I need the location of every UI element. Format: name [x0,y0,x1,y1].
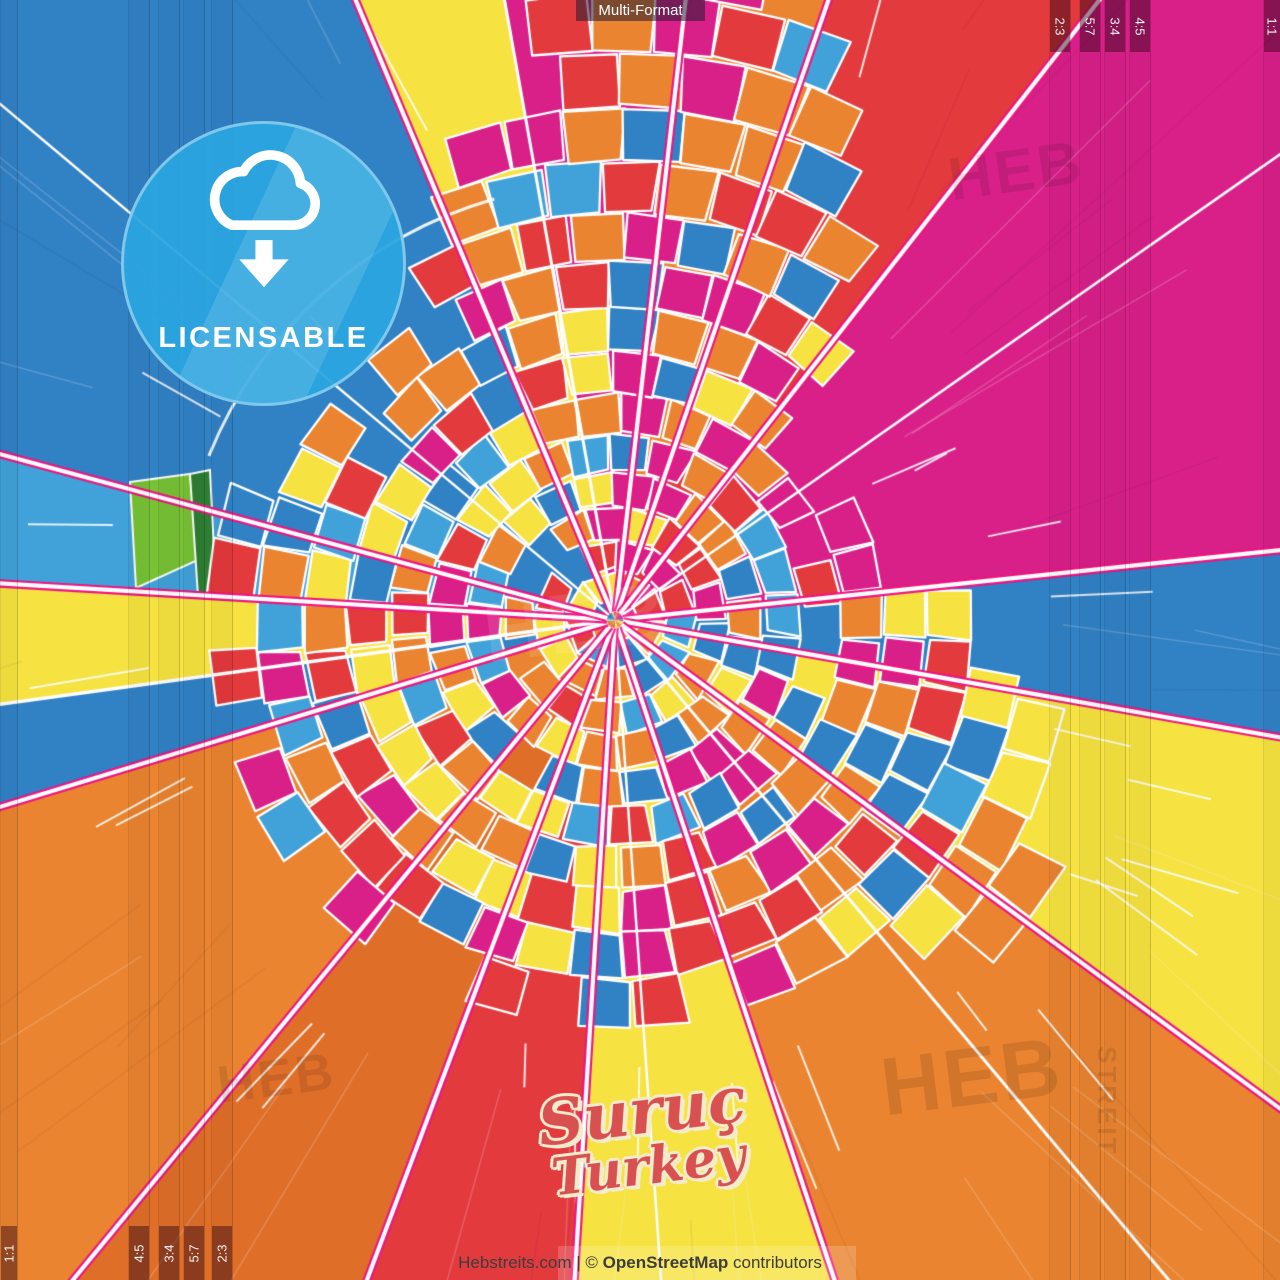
attribution-suffix: contributors [728,1253,822,1272]
attribution-separator: | © [572,1253,603,1272]
badge-label: LICENSABLE [124,322,403,355]
map-poster: Multi-Format LICENSABLE Suruç Turkey Heb… [0,0,1280,1280]
aspect-ratio-label: 3:4 [1107,17,1122,35]
aspect-ratio-cap: 5:7 [1080,0,1100,52]
aspect-ratio-cap: 4:5 [1130,0,1150,52]
aspect-ratio-cap: 2:3 [1050,0,1070,52]
aspect-ratio-label: 5:7 [1082,17,1097,35]
osm-link[interactable]: OpenStreetMap [603,1253,729,1272]
site-link[interactable]: Hebstreits.com [458,1253,571,1272]
format-label: Multi-Format [576,0,705,21]
aspect-ratio-label: 4:5 [1132,17,1147,35]
aspect-guide-column-1-1: 1:1 [0,0,18,1280]
attribution: Hebstreits.com | © OpenStreetMap contrib… [0,1253,1280,1273]
licensable-badge[interactable]: LICENSABLE [121,121,406,406]
aspect-guide-column-4-5: 4:5 [1129,0,1151,1280]
aspect-ratio-label: 1:1 [1265,17,1280,35]
aspect-ratio-cap: 3:4 [1105,0,1125,52]
watermark-text: STREIT [1091,1046,1122,1156]
aspect-ratio-cap: 1:1 [1264,0,1280,52]
format-label-text: Multi-Format [598,2,682,19]
aspect-guide-column-1-1: 1:1 [1263,0,1280,1280]
cloud-download-icon [184,148,344,298]
aspect-ratio-label: 2:3 [1052,17,1067,35]
